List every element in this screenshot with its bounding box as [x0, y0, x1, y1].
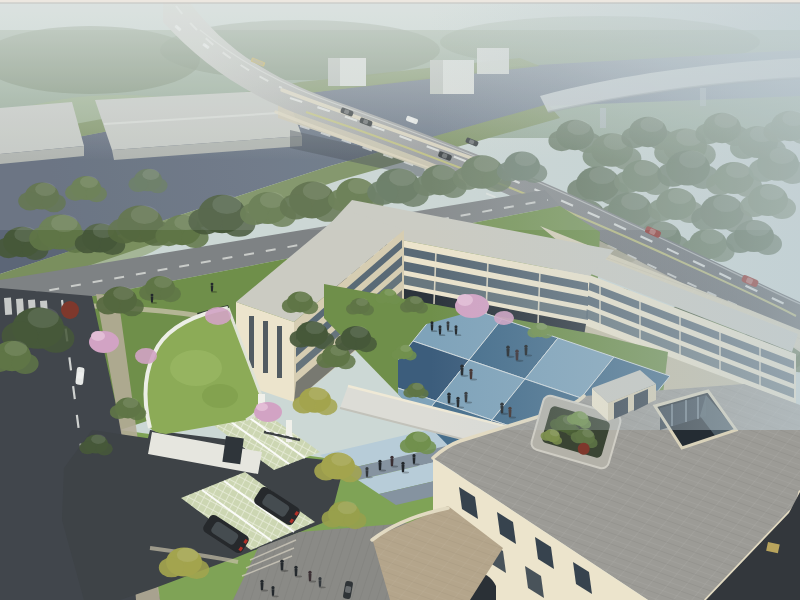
red-shrub [61, 301, 79, 319]
blossom-tree [254, 402, 282, 422]
gatehouse-door [222, 436, 243, 464]
haze-layer [0, 0, 800, 230]
roof-grass-dark [202, 384, 238, 408]
blossom-tree [89, 331, 119, 353]
slit-window [263, 321, 268, 373]
screenshot-root: Aerial architectural rendering of a thre… [0, 0, 800, 600]
slit-window [277, 326, 282, 378]
blossom-tree [135, 348, 157, 364]
frame-top-light [0, 0, 800, 3]
rendering-canvas: Aerial architectural rendering of a thre… [0, 0, 800, 600]
slit-window [249, 316, 254, 368]
frame-top-dark [0, 3, 800, 4]
roof-grass-light [170, 350, 222, 386]
blossom-tree [205, 307, 231, 325]
